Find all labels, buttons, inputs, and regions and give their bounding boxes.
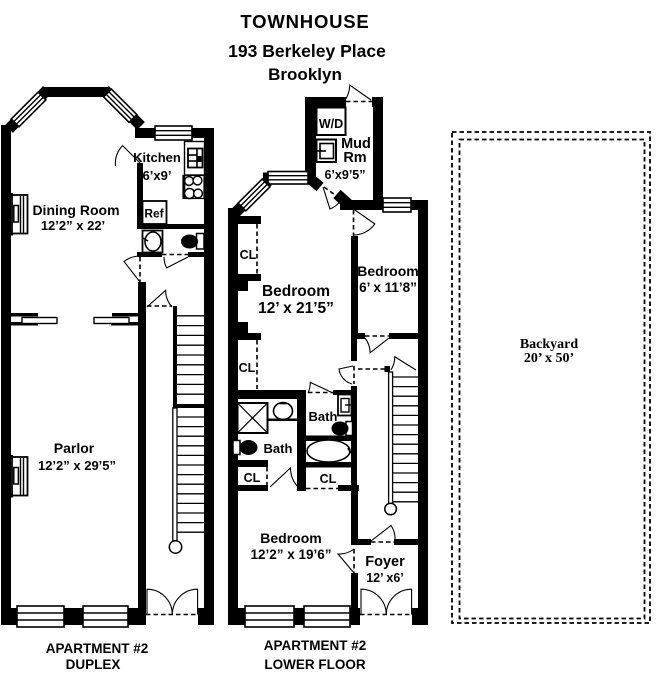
svg-text:W/D: W/D [319, 117, 343, 131]
svg-text:Bedroom: Bedroom [262, 283, 330, 300]
svg-text:Bedroom: Bedroom [357, 263, 418, 279]
svg-text:TOWNHOUSE: TOWNHOUSE [240, 11, 369, 32]
svg-text:CL: CL [320, 472, 337, 486]
svg-text:CL: CL [240, 248, 257, 262]
svg-text:LOWER FLOOR: LOWER FLOOR [264, 657, 365, 672]
svg-text:12’2” x 22’: 12’2” x 22’ [41, 218, 105, 233]
svg-text:6’x9’: 6’x9’ [143, 168, 172, 183]
svg-text:Bedroom: Bedroom [260, 530, 321, 546]
svg-text:CL: CL [244, 471, 261, 485]
svg-text:Backyard: Backyard [520, 337, 579, 352]
svg-text:6’x9’5”: 6’x9’5” [324, 168, 365, 182]
svg-text:Bath: Bath [264, 441, 293, 456]
svg-text:DUPLEX: DUPLEX [66, 657, 121, 672]
svg-text:193 Berkeley Place: 193 Berkeley Place [228, 41, 386, 61]
svg-text:Rm: Rm [343, 150, 366, 166]
svg-text:Parlor: Parlor [54, 440, 95, 456]
svg-text:12’2” x 19’6”: 12’2” x 19’6” [250, 547, 331, 562]
svg-text:Kitchen: Kitchen [133, 150, 181, 165]
svg-text:12’ x 21’5”: 12’ x 21’5” [258, 300, 334, 317]
svg-text:12’ x6’: 12’ x6’ [366, 571, 404, 585]
svg-text:12’2” x 29’5”: 12’2” x 29’5” [38, 458, 116, 473]
svg-text:Ref: Ref [144, 207, 164, 221]
svg-text:6’ x 11’8”: 6’ x 11’8” [359, 280, 417, 295]
svg-text:CL: CL [239, 361, 256, 375]
svg-text:Bath: Bath [309, 409, 338, 424]
svg-text:20’ x 50’: 20’ x 50’ [524, 351, 574, 366]
svg-text:Brooklyn: Brooklyn [268, 65, 342, 84]
svg-text:APARTMENT #2: APARTMENT #2 [46, 641, 149, 656]
svg-text:Foyer: Foyer [365, 554, 405, 570]
svg-text:APARTMENT #2: APARTMENT #2 [264, 638, 367, 653]
svg-text:Dining Room: Dining Room [32, 202, 119, 218]
